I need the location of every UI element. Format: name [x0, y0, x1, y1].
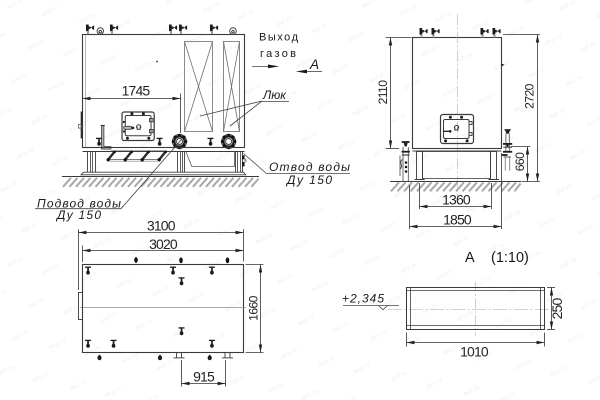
- svg-text:(1:10): (1:10): [491, 250, 529, 266]
- svg-text:1745: 1745: [122, 83, 151, 99]
- svg-text:915: 915: [193, 369, 215, 385]
- svg-text:+2,345: +2,345: [342, 292, 384, 306]
- svg-text:газов: газов: [260, 48, 296, 60]
- svg-text:660: 660: [513, 152, 527, 171]
- svg-text:А: А: [309, 57, 319, 72]
- svg-text:Отвод воды: Отвод воды: [269, 160, 350, 174]
- svg-text:1360: 1360: [442, 191, 471, 207]
- svg-text:3100: 3100: [147, 218, 176, 234]
- svg-text:А: А: [465, 250, 475, 266]
- svg-text:Выход: Выход: [259, 32, 299, 44]
- svg-text:Ду 150: Ду 150: [285, 173, 332, 187]
- svg-text:1010: 1010: [460, 344, 489, 360]
- svg-text:3020: 3020: [149, 236, 178, 252]
- svg-text:1850: 1850: [443, 211, 472, 227]
- svg-text:2720: 2720: [523, 83, 537, 109]
- svg-text:Ду 150: Ду 150: [55, 208, 101, 222]
- svg-text:2110: 2110: [376, 80, 390, 105]
- svg-text:250: 250: [549, 298, 565, 320]
- svg-text:1660: 1660: [247, 295, 261, 321]
- svg-text:Люк: Люк: [262, 88, 287, 102]
